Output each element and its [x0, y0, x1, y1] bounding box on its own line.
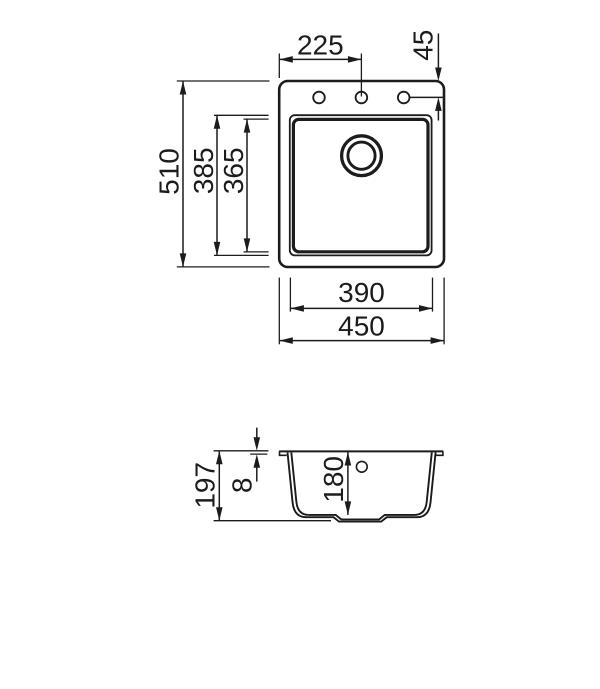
svg-text:8: 8: [227, 478, 258, 494]
svg-text:450: 450: [338, 310, 385, 341]
svg-text:510: 510: [153, 148, 184, 195]
svg-text:197: 197: [189, 462, 220, 509]
svg-text:385: 385: [188, 147, 219, 194]
svg-text:225: 225: [297, 30, 344, 61]
svg-text:45: 45: [408, 30, 439, 61]
svg-text:365: 365: [218, 147, 249, 194]
svg-text:390: 390: [338, 277, 385, 308]
svg-text:180: 180: [318, 456, 349, 503]
